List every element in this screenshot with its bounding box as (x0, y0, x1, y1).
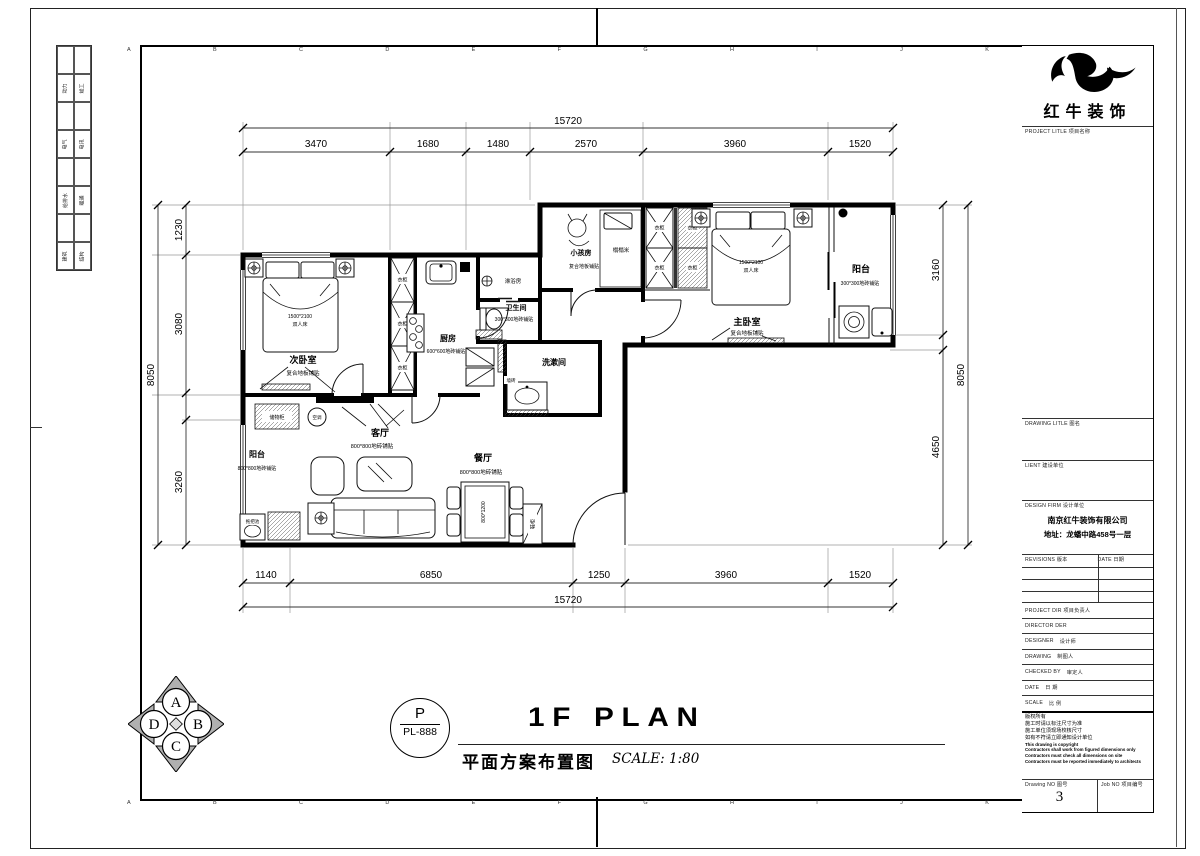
drawing-number-row: Drawing NO 图号 3 Job NO 项目编号 (1022, 779, 1153, 813)
dim: 1250 (588, 570, 611, 581)
dim-top-overall: 15720 (554, 116, 582, 127)
finish-label: 800*800地砖铺贴 (460, 468, 503, 476)
tv-icon (316, 396, 374, 403)
plant-icon (308, 503, 334, 534)
ac-label: 空调 (313, 414, 322, 421)
compass-letter-e: B (193, 717, 203, 733)
client-cell: LIENT 建设单位 (1022, 460, 1153, 500)
discipline-label: 动力 (62, 83, 69, 93)
design-firm-cell: DESIGN FIRM 设计单位 南京红牛装饰有限公司 地址：龙蟠中路458号一… (1022, 500, 1153, 554)
finish-label: 600*600地砖铺贴 (427, 348, 466, 355)
tiled-wall (476, 330, 502, 339)
finish-label: 300*300地砖铺贴 (841, 280, 880, 287)
brand-name: 红牛装饰 (1043, 98, 1131, 122)
double-bed-icon (263, 262, 338, 352)
discipline-label: 竣工 (79, 83, 86, 93)
stamp-letter: P (415, 705, 425, 722)
dim: 1230 (174, 218, 185, 241)
dim-left-overall: 8050 (146, 363, 157, 386)
drawing-title-cell: DRAWING LITLE 图名 (1022, 418, 1153, 460)
designer-row: DESIGNER设计师 (1022, 633, 1153, 649)
drawing-no-label: Drawing NO 图号 (1025, 782, 1068, 788)
chair (447, 514, 460, 536)
dim: 3260 (174, 470, 185, 493)
balcony-sw: 阳台 800*800地砖铺贴 拖把池 (238, 449, 300, 540)
washbasin-icon (507, 382, 547, 410)
washing-machine-icon (839, 306, 869, 338)
mop-pool-label: 拖把池 (246, 518, 260, 525)
discipline-label: 建筑 (62, 251, 69, 261)
revision-row (1022, 567, 1153, 579)
room-label: 小孩房 (570, 248, 592, 257)
laundry-cabinet (268, 512, 300, 540)
copyright-cell: 版权所有 施工时请以标注尺寸为准 施工单位须现场校核尺寸 如有不符请立即通知设计… (1022, 711, 1153, 779)
dim: 2570 (575, 139, 598, 150)
table-size-label: 800*1200 (481, 501, 487, 523)
storage-label: 储物柜 (269, 414, 284, 421)
coffee-table-icon (357, 457, 412, 491)
copyright-line-en: Contractors must be reported immediately… (1025, 759, 1150, 765)
dim: 4650 (931, 435, 942, 458)
stove-icon (407, 314, 424, 352)
compass-center (170, 718, 183, 731)
room-label: 厨房 (440, 333, 456, 343)
finish-label: 复合地板铺贴 (730, 329, 764, 337)
flower-icon (339, 262, 351, 274)
compass-letter-w: D (149, 717, 160, 733)
sliding-door (826, 207, 836, 345)
title-underline (458, 744, 945, 745)
compass-letter-n: A (171, 695, 182, 711)
scale-row: SCALE比 例 (1022, 695, 1153, 711)
project-title-label: PROJECT LITLE 项目名称 (1025, 129, 1090, 135)
drain-dot (839, 209, 848, 218)
tiled-wall (498, 340, 506, 372)
shoe-cabinet: 鞋柜 (523, 504, 542, 544)
dim: 1520 (849, 139, 872, 150)
shoe-cabinet-label: 鞋柜 (530, 519, 537, 529)
room-label: 阳台 (249, 449, 265, 459)
discipline-label: 电气 (62, 139, 69, 149)
drawing-stamp: P PL-888 (390, 698, 450, 758)
plan-title-en: 1F PLAN (528, 702, 706, 733)
dim: 3960 (715, 570, 738, 581)
flower-icon (695, 212, 707, 224)
dim: 1680 (417, 139, 440, 150)
finish-label: 复合地板铺贴 (569, 263, 599, 270)
wardrobe-label: 衣柜 (687, 265, 697, 272)
orientation-compass: A B C D (128, 676, 224, 772)
entry-door (573, 493, 625, 545)
finish-label: 800*800地砖铺贴 (238, 465, 277, 472)
bed-type-label: 双人床 (743, 267, 758, 274)
kidsroom-door (571, 290, 597, 316)
double-bed-icon (712, 212, 790, 305)
wardrobe-label: 衣柜 (654, 265, 664, 272)
bed-size-label: 1500*2100 (288, 314, 312, 320)
finish-label: 300*300地砖铺贴 (495, 316, 534, 323)
copyright-line: 施工时请以标注尺寸为准 (1025, 721, 1150, 728)
grid-letter: A (127, 800, 131, 806)
dim: 1480 (487, 139, 510, 150)
drawing-title-label: DRAWING LITLE 图名 (1025, 421, 1080, 427)
dresser (262, 384, 310, 390)
dim: 1520 (849, 570, 872, 581)
client-label: LIENT 建设单位 (1025, 463, 1064, 469)
room-label: 次卧室 (289, 354, 316, 365)
brand-area: 红牛装饰 (1022, 46, 1153, 126)
wall-tile-label: 墙砖 (507, 377, 516, 384)
checked-row: CHECKED BY审定人 (1022, 664, 1153, 680)
compass-letter-s: C (171, 739, 181, 755)
sofa-icon (331, 498, 435, 538)
wardrobe-label: 衣柜 (397, 321, 407, 328)
job-no-label: Job NO 项目编号 (1101, 782, 1143, 788)
revisions-label: REVISIONS 版本 (1025, 556, 1098, 563)
room-label: 洗漱间 (542, 357, 566, 367)
room-label: 主卧室 (733, 316, 760, 327)
dim: 6850 (420, 570, 443, 581)
room-label: 阳台 (852, 263, 870, 274)
dim: 3960 (724, 139, 747, 150)
stamp-code: PL-888 (403, 726, 437, 738)
dim: 3160 (931, 258, 942, 281)
revisions-cell: REVISIONS 版本 DATE 日期 (1022, 554, 1153, 602)
top-center-mark (596, 8, 598, 45)
drawing-sheet: 动力 竣工 电气 电讯 给排水 暖通 建筑 结构 ABCDEFGHIJK ABC… (0, 0, 1200, 856)
design-firm-address: 地址：龙蟠中路458号一层 (1025, 529, 1150, 540)
hob-vent (460, 262, 470, 272)
dim-right-overall: 8050 (956, 363, 967, 386)
project-title-cell: PROJECT LITLE 项目名称 (1022, 126, 1153, 418)
copyright-line: 如有不符请立即通知设计单位 (1025, 735, 1150, 742)
design-firm-label: DESIGN FIRM 设计单位 (1025, 503, 1084, 509)
plan-title-cn: 平面方案布置图 (462, 748, 595, 773)
dim: 3470 (305, 139, 328, 150)
dining-table-icon: 800*1200 (461, 482, 509, 542)
left-center-mark (30, 427, 42, 428)
wardrobe-label: 衣柜 (654, 225, 664, 232)
drawing-no-value: 3 (1025, 789, 1094, 806)
room-label: 客厅 (370, 427, 389, 438)
room-label: 淋浴房 (505, 277, 522, 285)
drawing-row: DRAWING制图人 (1022, 649, 1153, 665)
tiled-wall (505, 410, 548, 416)
discipline-label: 给排水 (62, 192, 69, 207)
bedroom2-door (332, 364, 363, 395)
flower-icon (248, 262, 260, 274)
bed-size-label: 1500*2100 (739, 260, 763, 266)
copyright-line: 施工单位须现场校核尺寸 (1025, 728, 1150, 735)
kitchen-door (412, 395, 440, 423)
wardrobe-label: 衣柜 (397, 277, 407, 284)
balcony-ne: 阳台 300*300地砖铺贴 (839, 209, 893, 339)
discipline-label: 结构 (79, 251, 86, 261)
room-label: 餐厅 (473, 452, 492, 463)
side-table-icon (311, 457, 344, 495)
sheet-outer-border-right (1176, 8, 1177, 847)
plan-scale: SCALE: 1:80 (612, 751, 699, 767)
chair (510, 514, 523, 536)
revision-row (1022, 579, 1153, 591)
dim-bottom-overall: 15720 (554, 595, 582, 606)
storage-cabinet: 储物柜 (255, 404, 299, 429)
discipline-label: 暖通 (79, 195, 86, 205)
discipline-table: 动力 竣工 电气 电讯 给排水 暖通 建筑 结构 (56, 45, 92, 271)
shower-slider (498, 299, 520, 302)
design-firm-name: 南京红牛装饰有限公司 (1025, 515, 1150, 526)
discipline-label: 电讯 (79, 139, 86, 149)
dining-room: 餐厅 800*800地砖铺贴 800*1200 鞋柜 (447, 452, 542, 544)
room-label: 榻榻米 (613, 246, 630, 254)
dim: 1140 (255, 570, 277, 581)
room-label: 卫生间 (506, 303, 527, 312)
balcony-sink-icon (872, 308, 892, 336)
rocking-horse-icon (568, 214, 589, 246)
finish-label: 800*800地砖铺贴 (351, 442, 394, 450)
date-row: DATE日 期 (1022, 680, 1153, 696)
kids-room: 小孩房 复合地板铺贴 榻榻米 衣柜 衣柜 衣柜 衣柜 (568, 208, 707, 288)
grid-letter: A (127, 47, 131, 53)
bed-type-label: 双人床 (292, 321, 307, 328)
ac-unit: 空调 (308, 408, 326, 426)
brand-logo (1040, 50, 1136, 96)
mop-pool-icon: 拖把池 (240, 514, 265, 540)
master-door (643, 300, 681, 338)
master-bedroom: 1500*2100 双人床 主卧室 复合地板铺贴 (692, 209, 812, 343)
director-row: DIRECTOR DER (1022, 618, 1153, 634)
title-block: 红牛装饰 PROJECT LITLE 项目名称 DRAWING LITLE 图名… (1022, 45, 1154, 813)
flower-icon (797, 212, 809, 224)
copyright-line: 版权所有 (1025, 714, 1150, 721)
date-col-label: DATE 日期 (1098, 556, 1125, 563)
chair (510, 487, 523, 509)
walls (243, 205, 893, 545)
dim: 3080 (174, 312, 185, 335)
chair (447, 487, 460, 509)
wardrobe-label: 衣柜 (397, 365, 407, 372)
project-dir-row: PROJECT DIR 项目负责人 (1022, 602, 1153, 618)
floor-plan: 15720 3470 1680 1480 2570 3960 1520 1140… (140, 45, 1020, 801)
